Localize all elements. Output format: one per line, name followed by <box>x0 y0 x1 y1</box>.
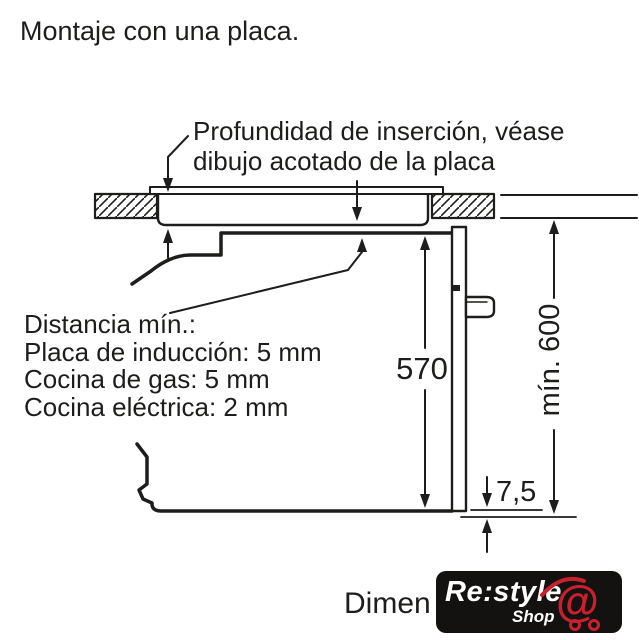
restyle-shop-logo: Re:style Shop @ <box>436 571 622 633</box>
clearance-item-electric: Cocina eléctrica: 2 mm <box>24 394 322 422</box>
installation-diagram-page: Montaje con una placa. Profundidad de in… <box>0 0 639 640</box>
clearance-title: Distancia mín.: <box>24 311 322 339</box>
clearance-arrow-left <box>163 229 173 258</box>
countertop-right-section <box>432 194 494 218</box>
clearance-note: Distancia mín.: Placa de inducción: 5 mm… <box>24 311 322 421</box>
oven-bottom-outline <box>137 444 452 511</box>
cooktop-lip <box>150 187 443 194</box>
oven-door <box>452 227 466 511</box>
door-hinge-tick <box>453 285 460 291</box>
oven-top-outline <box>132 233 452 284</box>
svg-text:@: @ <box>556 577 599 626</box>
countertop-left-section <box>95 194 157 218</box>
bottom-caption: Dimen <box>344 587 431 621</box>
cart-at-icon: @ <box>436 571 622 633</box>
clearance-leader <box>170 238 367 313</box>
dim-600-label: mín. 600 <box>534 300 564 420</box>
dim-75-label: 7,5 <box>496 476 536 509</box>
door-knob <box>466 297 494 317</box>
dim-570-label: 570 <box>394 351 450 387</box>
clearance-item-gas: Cocina de gas: 5 mm <box>24 366 322 394</box>
cooktop-tub <box>158 193 428 225</box>
insertion-note: Profundidad de inserción, véase dibujo a… <box>193 116 564 176</box>
insertion-note-line1: Profundidad de inserción, véase <box>193 116 564 146</box>
clearance-item-induction: Placa de inducción: 5 mm <box>24 339 322 367</box>
insertion-note-leader <box>163 136 188 192</box>
insertion-note-line2: dibujo acotado de la placa <box>193 146 564 176</box>
page-title: Montaje con una placa. <box>20 16 299 47</box>
